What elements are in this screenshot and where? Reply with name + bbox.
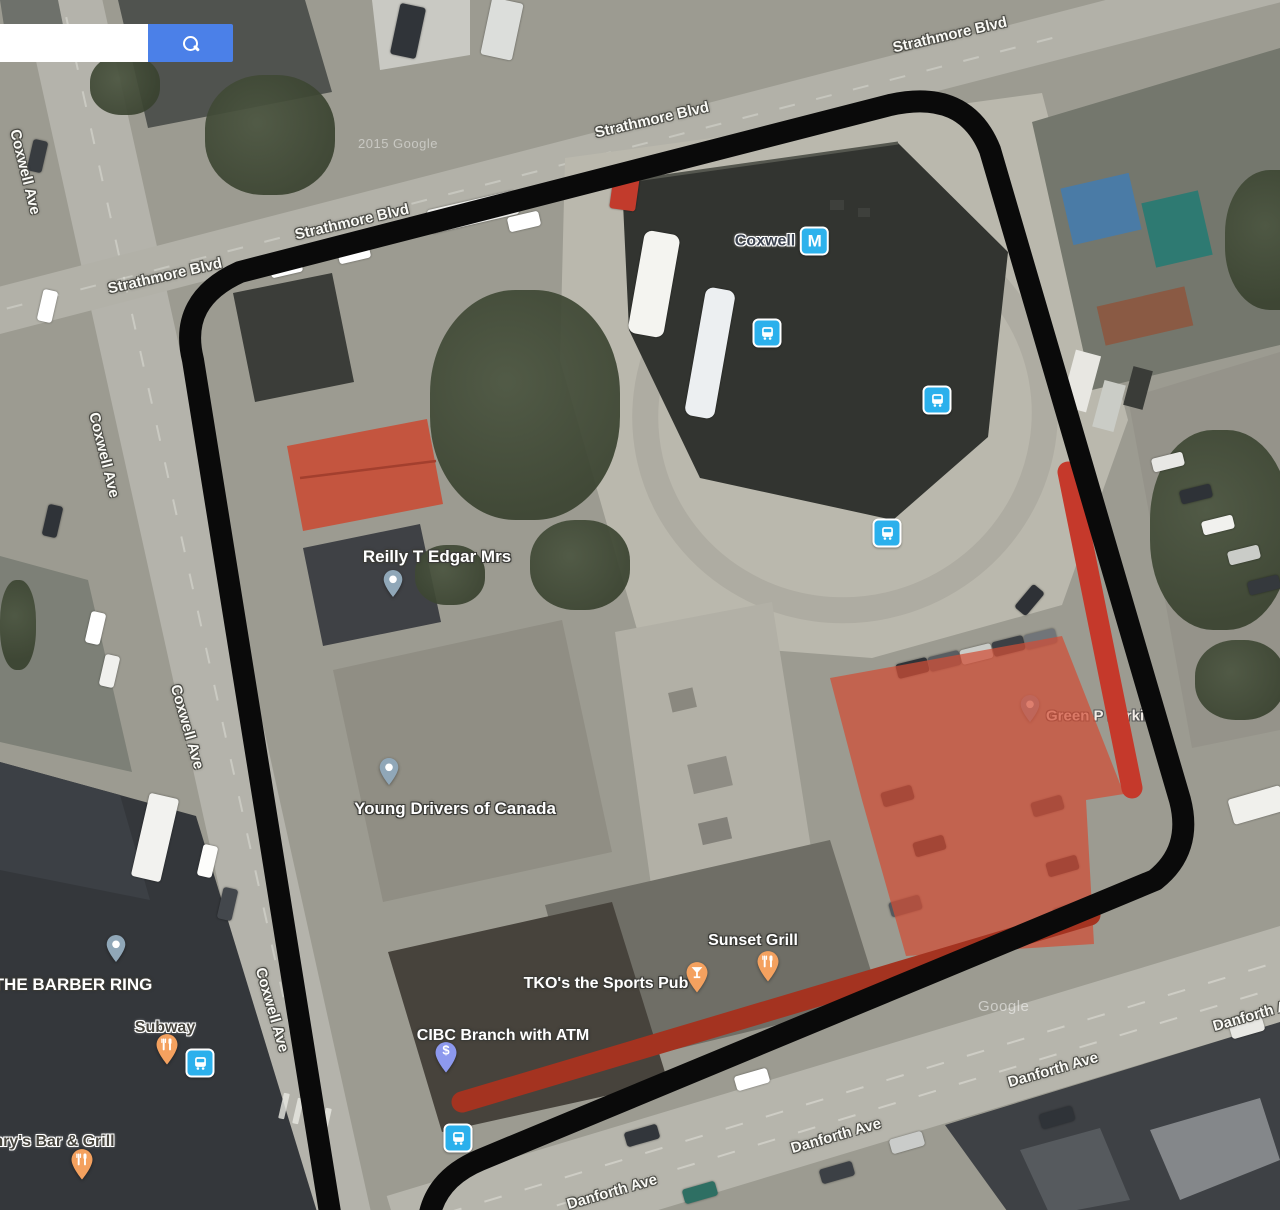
street-label-danforth: Danforth Ave [789, 1115, 883, 1157]
barber-ring-pin[interactable] [104, 934, 128, 964]
bus-stop-icon[interactable] [873, 519, 902, 548]
street-label-coxwell: Coxwell Ave [167, 683, 207, 772]
poi-label-reilly[interactable]: Reilly T Edgar Mrs [363, 547, 511, 567]
street-label-danforth: Danforth Ave [1211, 993, 1280, 1035]
sunset-grill-pin[interactable] [755, 949, 782, 983]
bus-stop-icon[interactable] [753, 319, 782, 348]
henrys-bar-pin[interactable] [69, 1147, 96, 1181]
station-name: Coxwell [735, 232, 795, 250]
street-label-coxwell: Coxwell Ave [252, 966, 292, 1055]
street-label-coxwell: Coxwell Ave [6, 128, 44, 217]
search-bar [0, 24, 233, 62]
label-layer: Strathmore Blvd Strathmore Blvd Coxwell … [0, 0, 1280, 1210]
bus-stop-icon[interactable] [186, 1049, 215, 1078]
search-input[interactable] [0, 24, 148, 62]
street-label-danforth: Danforth Ave [565, 1171, 659, 1210]
subway-station-icon[interactable]: M [800, 227, 829, 256]
subway-station-label-coxwell[interactable]: Coxwell M [735, 227, 829, 256]
poi-label-henrys-bar[interactable]: nry's Bar & Grill [0, 1133, 115, 1151]
street-label-danforth: Danforth Ave [1006, 1049, 1100, 1091]
reilly-pin[interactable] [381, 569, 405, 599]
poi-label-sunset-grill[interactable]: Sunset Grill [708, 932, 798, 950]
poi-label-tkos-pub[interactable]: TKO's the Sports Pub [524, 975, 689, 993]
map-canvas[interactable]: 2015 Google Google Strathmore Blvd Strat… [0, 0, 1280, 1210]
young-drivers-pin[interactable] [377, 757, 401, 787]
poi-label-barber-ring[interactable]: THE BARBER RING [0, 975, 152, 995]
subway-restaurant-pin[interactable] [154, 1032, 181, 1066]
magnifier-handle [193, 45, 200, 52]
cibc-atm-pin[interactable]: $ [433, 1040, 460, 1074]
tkos-pub-pin[interactable] [684, 960, 711, 994]
search-button[interactable] [148, 24, 233, 62]
bus-stop-icon[interactable] [444, 1124, 473, 1153]
poi-label-young-drivers[interactable]: Young Drivers of Canada [354, 799, 556, 819]
dollar-icon: $ [433, 1042, 460, 1057]
street-label-strathmore: Strathmore Blvd [106, 255, 224, 298]
street-label-strathmore: Strathmore Blvd [891, 14, 1009, 57]
bus-stop-icon[interactable] [923, 386, 952, 415]
street-label-coxwell: Coxwell Ave [85, 411, 123, 500]
